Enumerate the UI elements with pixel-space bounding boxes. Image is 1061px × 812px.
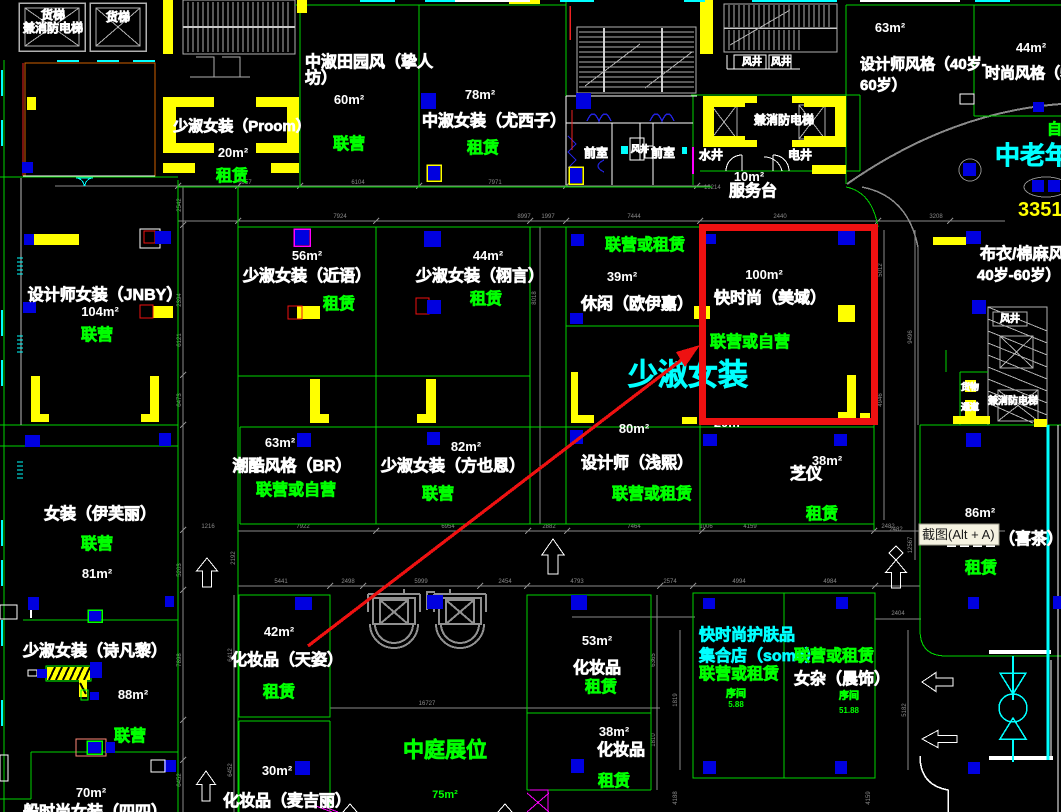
- svg-text:4188: 4188: [673, 791, 679, 805]
- svg-text:水井: 水井: [699, 147, 723, 162]
- svg-text:6104: 6104: [351, 180, 365, 186]
- svg-text:联营或自营: 联营或自营: [710, 332, 790, 351]
- svg-text:78m²: 78m²: [465, 87, 496, 102]
- svg-text:租赁: 租赁: [965, 558, 997, 577]
- svg-text:8018: 8018: [532, 291, 538, 305]
- svg-text:联营或租赁: 联营或租赁: [794, 646, 874, 665]
- svg-text:货梯: 货梯: [41, 7, 65, 22]
- svg-text:设计师（浅熙）: 设计师（浅熙）: [581, 453, 693, 472]
- svg-text:1819: 1819: [673, 693, 679, 707]
- svg-text:少淑女装（栩言）: 少淑女装（栩言）: [415, 266, 544, 285]
- svg-text:1216: 1216: [201, 524, 215, 530]
- svg-text:联营: 联营: [333, 134, 365, 153]
- svg-text:5.88: 5.88: [728, 700, 744, 709]
- svg-text:3208: 3208: [929, 214, 943, 220]
- svg-text:7924: 7924: [333, 214, 347, 220]
- svg-text:（喜茶）: （喜茶）: [999, 529, 1061, 548]
- svg-text:风井: 风井: [1000, 312, 1020, 325]
- svg-text:兼消防电梯: 兼消防电梯: [753, 112, 814, 127]
- svg-text:序间: 序间: [726, 687, 746, 700]
- svg-text:潮酷风格（BR）: 潮酷风格（BR）: [232, 456, 351, 475]
- svg-text:2498: 2498: [341, 579, 355, 585]
- svg-text:芝仪: 芝仪: [790, 464, 823, 483]
- svg-text:6954: 6954: [441, 524, 455, 530]
- svg-text:货物: 货物: [961, 381, 979, 392]
- svg-text:通道: 通道: [961, 401, 979, 412]
- svg-text:2192: 2192: [231, 551, 237, 565]
- svg-text:20m²: 20m²: [218, 145, 249, 160]
- svg-text:40岁-60岁）: 40岁-60岁）: [977, 266, 1060, 284]
- svg-text:56m²: 56m²: [292, 248, 323, 263]
- svg-text:16727: 16727: [419, 701, 436, 707]
- svg-text:104m²: 104m²: [81, 304, 119, 319]
- svg-text:88m²: 88m²: [118, 687, 149, 702]
- svg-text:8997: 8997: [517, 214, 531, 220]
- svg-text:风井: 风井: [742, 55, 762, 68]
- svg-text:前室: 前室: [651, 145, 675, 160]
- svg-text:兼消防电梯: 兼消防电梯: [22, 20, 83, 35]
- svg-text:10m²: 10m²: [734, 169, 765, 184]
- svg-text:6365: 6365: [651, 653, 657, 667]
- svg-text:60岁）: 60岁）: [860, 76, 907, 94]
- svg-text:少淑女装（方也恩）: 少淑女装（方也恩）: [380, 456, 525, 475]
- svg-text:2882: 2882: [542, 524, 556, 530]
- svg-text:中老年: 中老年: [995, 141, 1061, 170]
- svg-text:100m²: 100m²: [745, 267, 783, 282]
- svg-text:化妆品（天姿）: 化妆品（天姿）: [231, 650, 343, 669]
- svg-text:63m²: 63m²: [265, 435, 296, 450]
- svg-text:少淑女装（Proom）: 少淑女装（Proom）: [172, 117, 311, 135]
- svg-text:5441: 5441: [274, 579, 288, 585]
- svg-text:70m²: 70m²: [76, 785, 107, 800]
- svg-text:联营: 联营: [81, 534, 113, 553]
- svg-text:中庭展位: 中庭展位: [403, 738, 487, 762]
- svg-text:兼消防电梯: 兼消防电梯: [988, 394, 1038, 407]
- svg-text:化妆品: 化妆品: [597, 740, 645, 759]
- svg-text:44m²: 44m²: [1016, 40, 1047, 55]
- svg-text:快时尚（美域）: 快时尚（美域）: [714, 288, 826, 307]
- svg-text:租赁: 租赁: [806, 504, 838, 523]
- svg-text:电井: 电井: [788, 147, 812, 162]
- svg-text:2574: 2574: [663, 579, 677, 585]
- svg-text:休闲（欧伊嘉）: 休闲（欧伊嘉）: [580, 294, 693, 313]
- svg-text:女装（伊芙丽）: 女装（伊芙丽）: [44, 504, 156, 523]
- svg-text:联营: 联营: [422, 484, 454, 503]
- svg-text:4793: 4793: [570, 579, 584, 585]
- svg-text:4994: 4994: [732, 579, 746, 585]
- svg-text:化妆品（麦吉丽）: 化妆品（麦吉丽）: [223, 791, 351, 810]
- svg-text:截图(Alt + A): 截图(Alt + A): [922, 527, 995, 542]
- svg-text:44m²: 44m²: [473, 248, 504, 263]
- svg-text:设计师风格（40岁-: 设计师风格（40岁-: [860, 55, 987, 73]
- svg-text:81m²: 81m²: [82, 566, 113, 581]
- svg-text:中淑田园风（挚人: 中淑田园风（挚人: [305, 52, 434, 71]
- svg-text:服务台: 服务台: [729, 181, 777, 200]
- svg-text:快时尚护肤品: 快时尚护肤品: [699, 625, 795, 644]
- svg-text:2482: 2482: [889, 527, 903, 533]
- svg-text:联营或自营: 联营或自营: [256, 480, 336, 499]
- svg-text:自营: 自营: [1047, 120, 1061, 138]
- svg-text:7464: 7464: [627, 524, 641, 530]
- svg-text:38m²: 38m²: [599, 724, 630, 739]
- svg-text:租赁: 租赁: [470, 289, 502, 308]
- svg-text:5012: 5012: [878, 263, 884, 277]
- svg-text:1810: 1810: [651, 733, 657, 747]
- svg-text:租赁: 租赁: [467, 138, 499, 157]
- svg-text:4159: 4159: [743, 524, 757, 530]
- svg-text:4946: 4946: [878, 393, 884, 407]
- svg-text:5182: 5182: [902, 703, 908, 717]
- svg-text:租赁: 租赁: [598, 771, 630, 790]
- svg-text:7971: 7971: [488, 180, 502, 186]
- svg-text:19214: 19214: [704, 185, 721, 191]
- svg-text:风井: 风井: [631, 143, 649, 154]
- svg-text:86m²: 86m²: [965, 505, 996, 520]
- svg-text:中淑女装（尤西子）: 中淑女装（尤西子）: [422, 111, 566, 130]
- svg-text:联营: 联营: [114, 726, 146, 745]
- svg-text:75m²: 75m²: [432, 789, 458, 801]
- svg-text:2440: 2440: [773, 214, 787, 220]
- svg-text:租赁: 租赁: [216, 166, 248, 185]
- svg-text:1997: 1997: [541, 214, 555, 220]
- svg-text:30m²: 30m²: [262, 763, 293, 778]
- svg-text:80m²: 80m²: [619, 421, 650, 436]
- svg-text:联营或租赁: 联营或租赁: [605, 235, 685, 254]
- svg-text:7922: 7922: [296, 524, 310, 530]
- svg-text:6452: 6452: [228, 763, 234, 777]
- svg-text:2404: 2404: [891, 611, 905, 617]
- svg-text:少淑女装（近语）: 少淑女装（近语）: [242, 266, 371, 285]
- svg-text:51.88: 51.88: [839, 706, 860, 715]
- svg-text:2454: 2454: [498, 579, 512, 585]
- svg-text:设计师女装（JNBY）: 设计师女装（JNBY）: [28, 285, 183, 304]
- svg-text:租赁: 租赁: [585, 677, 617, 696]
- svg-text:53m²: 53m²: [582, 633, 613, 648]
- svg-text:4159: 4159: [866, 791, 872, 805]
- svg-text:12567: 12567: [908, 536, 914, 553]
- svg-text:女杂（晨饰）: 女杂（晨饰）: [794, 669, 890, 688]
- svg-text:63m²: 63m²: [875, 20, 906, 35]
- svg-text:化妆品: 化妆品: [573, 658, 621, 677]
- svg-text:租赁: 租赁: [323, 294, 355, 313]
- svg-text:联营: 联营: [81, 325, 113, 344]
- svg-text:时尚风格（50: 时尚风格（50: [985, 64, 1061, 82]
- svg-text:3351: 3351: [1018, 199, 1061, 221]
- svg-text:9496: 9496: [908, 330, 914, 344]
- svg-text:联营或租赁: 联营或租赁: [699, 664, 779, 683]
- svg-text:前室: 前室: [584, 145, 608, 160]
- svg-text:般时尚女装（四四）: 般时尚女装（四四）: [23, 802, 167, 812]
- svg-text:少淑女装（诗凡黎）: 少淑女装（诗凡黎）: [22, 641, 167, 660]
- svg-text:5999: 5999: [414, 579, 428, 585]
- svg-text:布衣/棉麻风/民: 布衣/棉麻风/民: [980, 244, 1061, 263]
- svg-text:序间: 序间: [839, 689, 859, 702]
- svg-text:7444: 7444: [627, 214, 641, 220]
- svg-text:42m²: 42m²: [264, 624, 295, 639]
- svg-text:82m²: 82m²: [451, 439, 482, 454]
- svg-text:坊）: 坊）: [305, 68, 337, 87]
- svg-text:租赁: 租赁: [263, 682, 295, 701]
- svg-text:39m²: 39m²: [607, 269, 638, 284]
- svg-text:60m²: 60m²: [334, 92, 365, 107]
- svg-text:1006: 1006: [699, 524, 713, 530]
- svg-text:联营或租赁: 联营或租赁: [612, 484, 692, 503]
- svg-text:风井: 风井: [771, 55, 791, 68]
- svg-text:4984: 4984: [823, 579, 837, 585]
- svg-text:货梯: 货梯: [106, 9, 130, 24]
